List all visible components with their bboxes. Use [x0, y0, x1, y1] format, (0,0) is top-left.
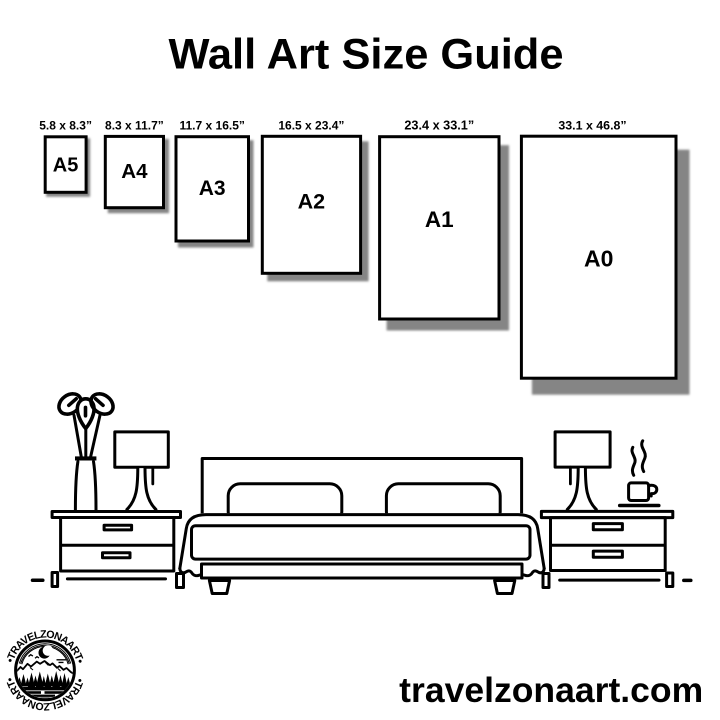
svg-text:8.3 x 11.7”: 8.3 x 11.7” — [105, 119, 164, 133]
svg-text:travelzonaart.com: travelzonaart.com — [399, 671, 703, 710]
svg-text:A5: A5 — [53, 155, 79, 177]
svg-text:A2: A2 — [298, 190, 326, 214]
svg-text:33.1 x 46.8”: 33.1 x 46.8” — [558, 119, 626, 133]
svg-text:Wall Art Size Guide: Wall Art Size Guide — [169, 32, 564, 79]
svg-text:A1: A1 — [425, 207, 454, 232]
svg-text:A0: A0 — [584, 245, 613, 271]
svg-text:23.4 x 33.1”: 23.4 x 33.1” — [404, 119, 474, 133]
svg-text:5.8 x 8.3”: 5.8 x 8.3” — [39, 119, 92, 133]
svg-text:16.5 x 23.4”: 16.5 x 23.4” — [278, 119, 344, 133]
svg-text:A3: A3 — [199, 177, 226, 200]
svg-text:A4: A4 — [121, 160, 148, 183]
svg-text:11.7 x 16.5”: 11.7 x 16.5” — [180, 119, 245, 133]
